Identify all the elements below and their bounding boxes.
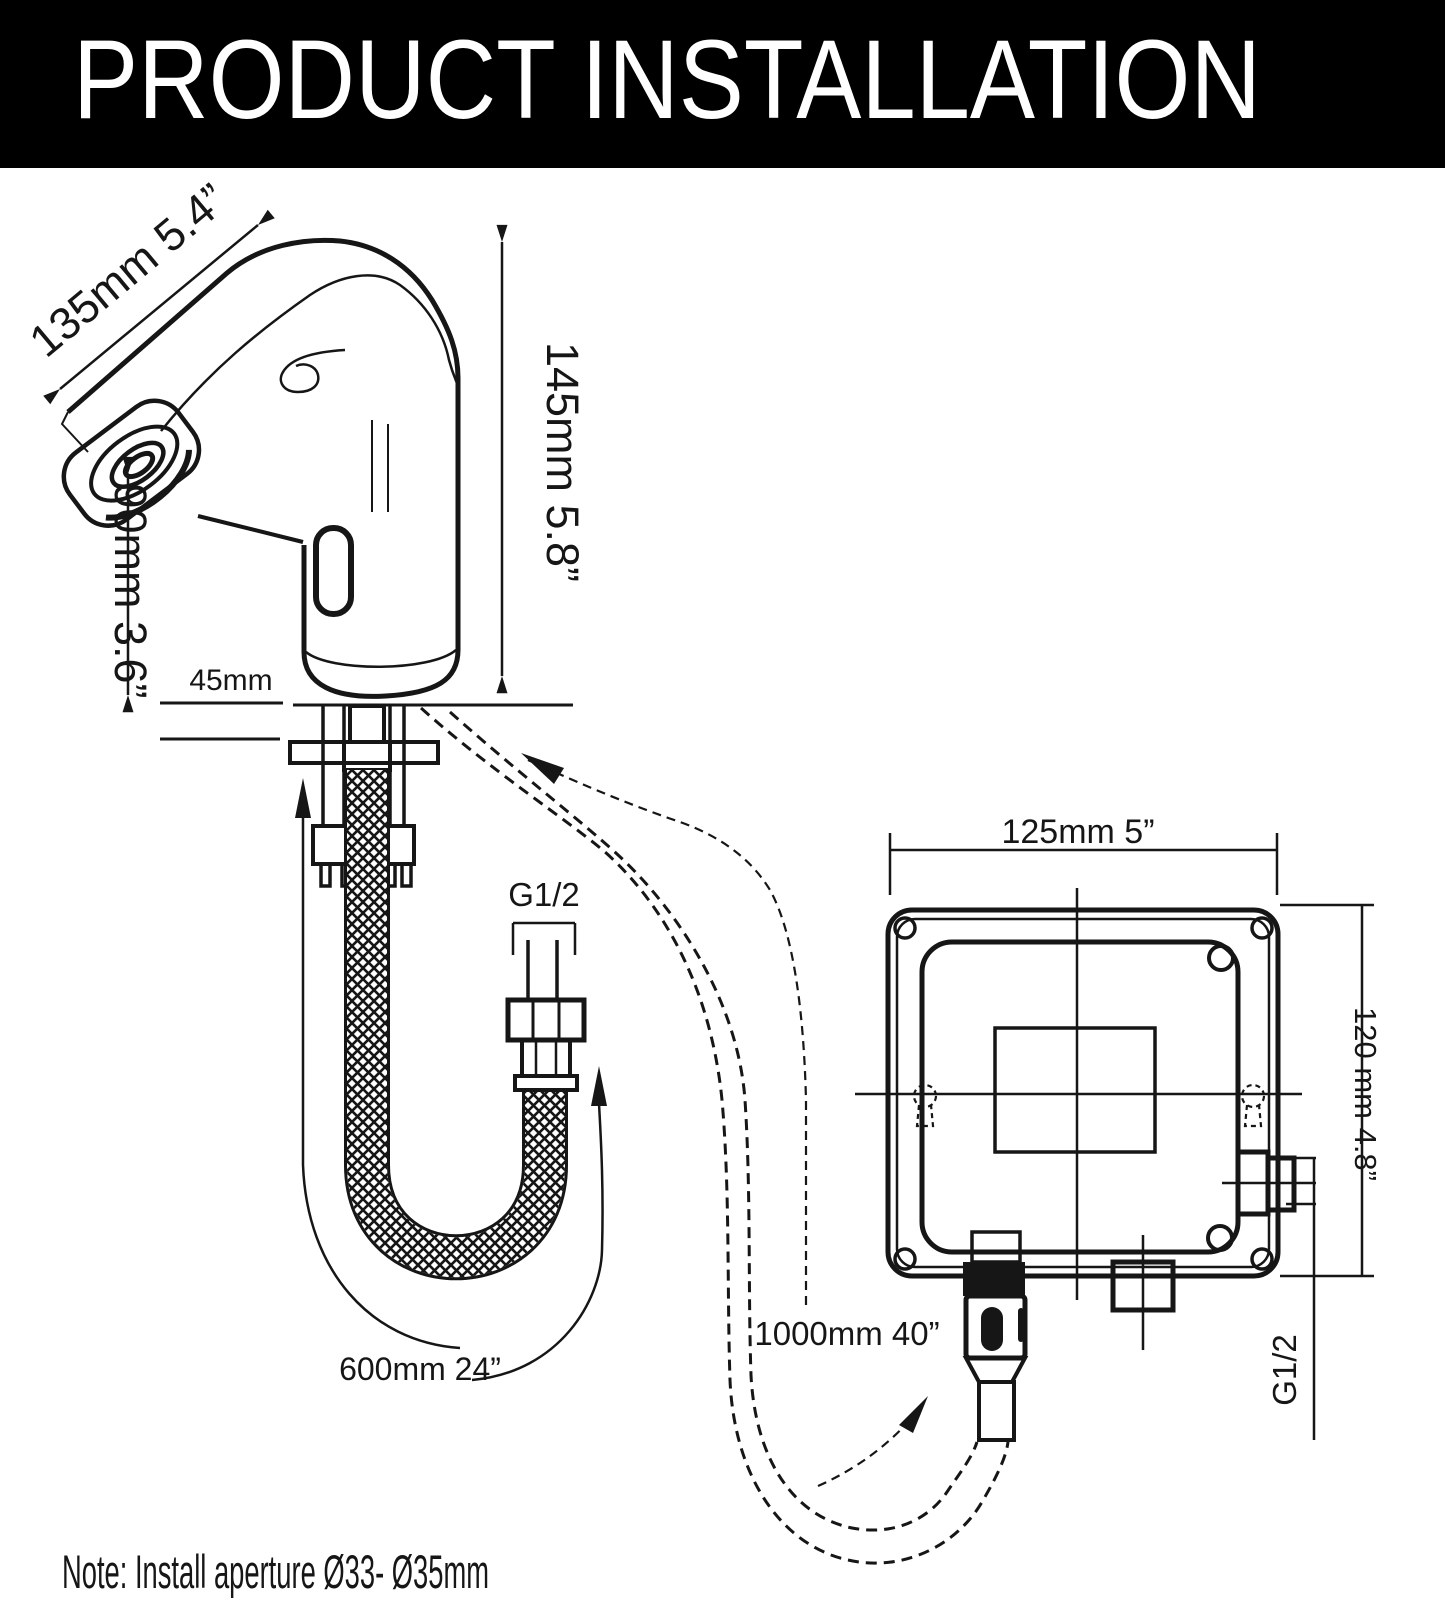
panel-screw-icon xyxy=(1209,946,1233,970)
thread-size-bracket xyxy=(513,923,575,955)
dim-label-cable-length: 1000mm 40” xyxy=(754,1315,939,1352)
keyhole-slot-right xyxy=(1242,1085,1264,1126)
hose-core xyxy=(367,770,545,1257)
spout-underside-edge xyxy=(198,516,303,542)
up-arrow-icon xyxy=(899,1396,928,1433)
label-hose-thread: G1/2 xyxy=(508,876,580,913)
arrow-to-faucet-icon xyxy=(521,753,564,784)
panel-screw-icon xyxy=(1208,1226,1232,1250)
connector-button xyxy=(981,1307,1003,1351)
body-highlight-lines xyxy=(372,420,388,512)
shank-fitting-lower xyxy=(344,742,390,770)
fitting-hex-nut xyxy=(508,1000,584,1040)
shank-fitting-upper xyxy=(350,706,384,742)
install-note: Note: Install aperture Ø33- Ø35mm xyxy=(62,1545,489,1598)
supply-hose xyxy=(367,770,545,1257)
label-outlet-thread: G1/2 xyxy=(1266,1334,1303,1406)
neck-lines xyxy=(536,1040,556,1076)
sensor-window xyxy=(316,528,351,614)
connector-stem xyxy=(979,1382,1014,1440)
dim-label-box-height: 120 mm 4.8” xyxy=(1348,1007,1383,1181)
installation-page: PRODUCT INSTALLATION xyxy=(0,0,1445,1612)
cable-leader-top xyxy=(528,760,806,1305)
sensor-eye-curl xyxy=(281,350,345,392)
up-arrow-icon xyxy=(295,778,311,818)
box-inner-panel xyxy=(922,942,1238,1252)
dim-label-deck: 45mm xyxy=(189,664,272,697)
hex-facets xyxy=(533,1000,559,1040)
hose-braid-texture xyxy=(367,770,545,1257)
hose-fitting xyxy=(508,923,584,1090)
connector-side-mark xyxy=(1018,1308,1024,1342)
connector-neck xyxy=(972,1232,1020,1262)
fitting-flange xyxy=(515,1076,577,1090)
screw-icon xyxy=(1252,918,1272,938)
dim-label-box-width: 125mm 5” xyxy=(1001,813,1154,851)
dim-label-height: 145mm 5.8” xyxy=(537,342,588,582)
connector-knurled-ring xyxy=(963,1262,1025,1296)
counter-line xyxy=(160,703,573,739)
counter-section xyxy=(160,703,573,739)
fitting-pipe-stub xyxy=(528,940,557,1000)
keyhole-slot-left xyxy=(914,1085,936,1126)
cable-connector-plug xyxy=(963,1232,1025,1440)
screw-icon xyxy=(895,1249,915,1269)
hose-outline xyxy=(367,770,545,1257)
box-center-window xyxy=(995,1028,1155,1152)
fitting-neck xyxy=(522,1040,570,1076)
installation-diagram: PRODUCT INSTALLATION xyxy=(0,0,1445,1612)
dim-label-spout-height: 90mm 3.6” xyxy=(105,483,156,698)
up-arrow-icon xyxy=(591,1066,607,1106)
screw-icon xyxy=(1252,1249,1272,1269)
control-box xyxy=(855,888,1316,1350)
page-title: PRODUCT INSTALLATION xyxy=(73,17,1261,142)
dim-label-hose-length: 600mm 24” xyxy=(339,1351,501,1387)
mounting-bracket-bar xyxy=(290,742,438,763)
spout-crease-line xyxy=(161,275,458,431)
base-rim-line xyxy=(306,650,456,667)
cable-leader-bottom xyxy=(818,1420,910,1486)
connector-taper xyxy=(966,1358,1025,1382)
